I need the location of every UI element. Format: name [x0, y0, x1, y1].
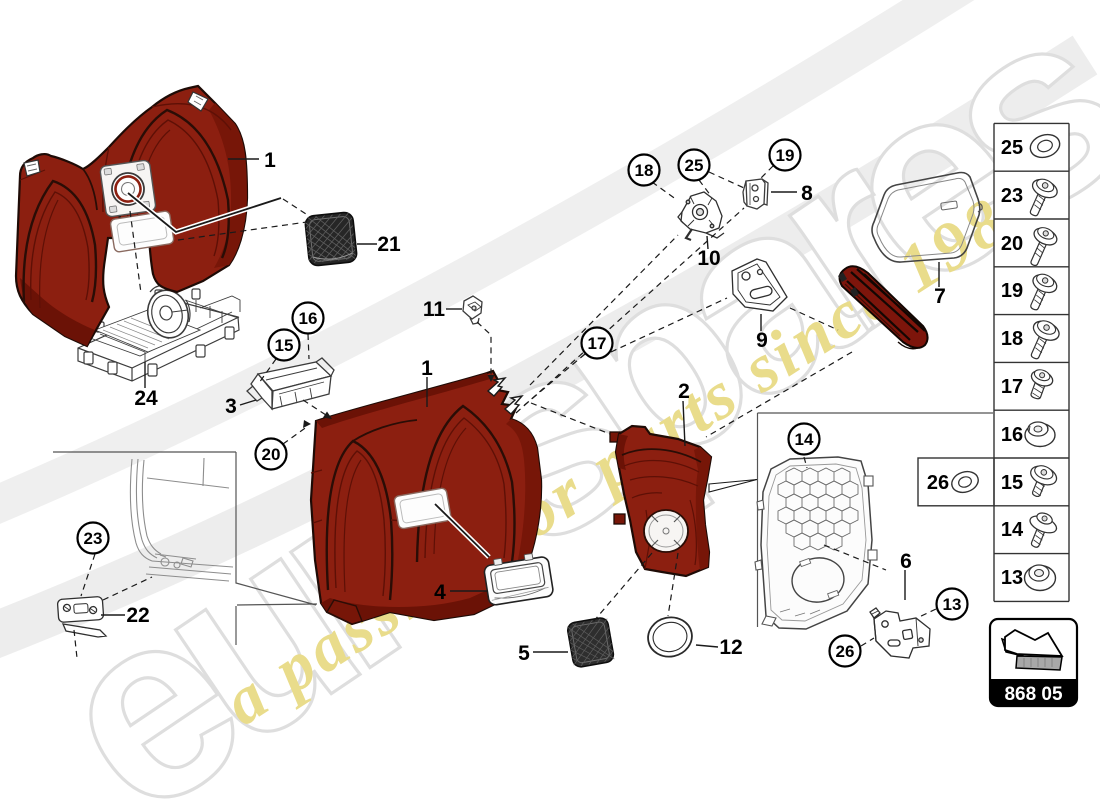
svg-text:15: 15	[275, 336, 294, 355]
svg-text:23: 23	[1001, 185, 1023, 207]
svg-text:16: 16	[299, 309, 318, 328]
svg-text:24: 24	[134, 387, 158, 410]
svg-text:16: 16	[1001, 424, 1023, 446]
svg-text:20: 20	[262, 445, 281, 464]
svg-text:14: 14	[795, 430, 814, 449]
svg-text:9: 9	[756, 329, 768, 352]
svg-text:868 05: 868 05	[1004, 684, 1063, 705]
svg-text:23: 23	[84, 529, 103, 548]
svg-text:12: 12	[719, 636, 742, 659]
svg-text:14: 14	[1001, 519, 1024, 541]
svg-text:1: 1	[421, 357, 433, 380]
svg-text:17: 17	[588, 334, 607, 353]
svg-text:5: 5	[518, 642, 530, 665]
svg-text:15: 15	[1001, 472, 1023, 494]
svg-text:6: 6	[900, 550, 912, 573]
svg-text:8: 8	[801, 182, 813, 205]
svg-text:19: 19	[776, 146, 795, 165]
svg-text:2: 2	[678, 380, 690, 403]
svg-text:3: 3	[225, 395, 237, 418]
svg-text:26: 26	[927, 472, 949, 494]
svg-text:20: 20	[1001, 233, 1023, 255]
svg-text:10: 10	[697, 247, 720, 270]
svg-text:26: 26	[836, 642, 855, 661]
svg-text:25: 25	[685, 156, 704, 175]
svg-text:4: 4	[434, 581, 446, 604]
svg-text:17: 17	[1001, 376, 1023, 398]
svg-text:19: 19	[1001, 280, 1023, 302]
svg-text:21: 21	[377, 233, 401, 256]
svg-text:11: 11	[423, 298, 446, 321]
svg-text:22: 22	[126, 604, 149, 627]
svg-text:1: 1	[264, 149, 276, 172]
svg-text:13: 13	[943, 595, 962, 614]
svg-text:25: 25	[1001, 137, 1023, 159]
svg-text:7: 7	[934, 285, 946, 308]
svg-text:13: 13	[1001, 567, 1023, 589]
svg-text:18: 18	[635, 161, 654, 180]
svg-text:18: 18	[1001, 328, 1023, 350]
